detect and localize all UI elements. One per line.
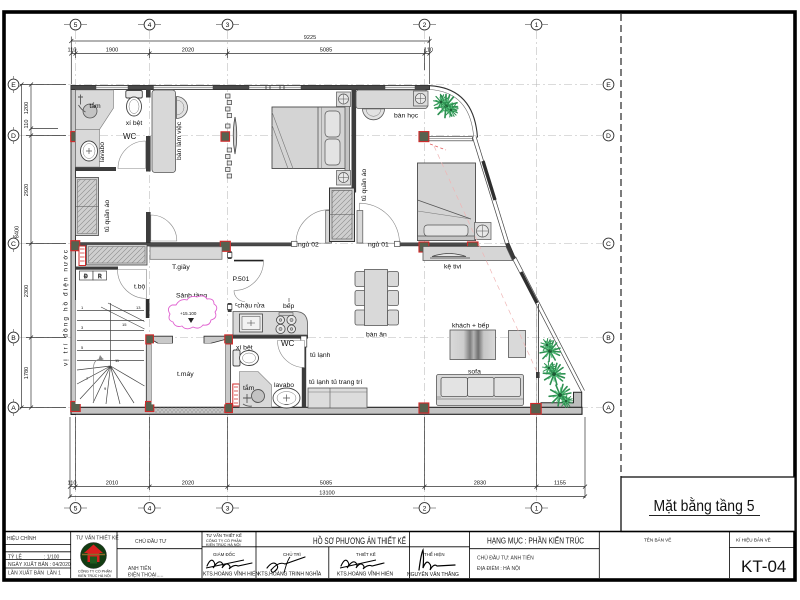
svg-text:khách + bếp: khách + bếp [452,321,489,330]
svg-text:kệ tivi: kệ tivi [444,264,462,271]
svg-text:2: 2 [423,506,427,513]
svg-text:ĐIỆN THOẠI.....: ĐIỆN THOẠI..... [128,571,163,579]
svg-text:HIỆU CHỈNH: HIỆU CHỈNH [7,534,37,542]
svg-text:bàn ăn: bàn ăn [366,332,387,339]
svg-text:E: E [11,82,16,89]
svg-text:HỒ SƠ PHƯƠNG ÁN THIẾT KẾ: HỒ SƠ PHƯƠNG ÁN THIẾT KẾ [313,535,406,546]
svg-text:1780: 1780 [24,367,30,379]
svg-text:T.giầy: T.giầy [172,262,190,271]
svg-text:TỶ LỆ: TỶ LỆ [8,553,23,561]
svg-text:110: 110 [68,481,77,487]
svg-text:KIẾN TRÚC HÀ NỘI: KIẾN TRÚC HÀ NỘI [206,542,241,547]
svg-text:5085: 5085 [320,481,332,487]
svg-text:TƯ VẤN THIẾT KẾ: TƯ VẤN THIẾT KẾ [206,533,242,538]
svg-text:THỂ HIỆN: THỂ HIỆN [424,552,445,557]
svg-text:4: 4 [148,22,152,29]
svg-text:3: 3 [226,506,230,513]
svg-text:ngủ 02: ngủ 02 [298,241,319,249]
svg-text:CHỦ TRÌ: CHỦ TRÌ [283,552,301,557]
svg-text:NGÀY XUẤT BẢN : 04/2020: NGÀY XUẤT BẢN : 04/2020 [8,561,71,568]
svg-text:5: 5 [74,22,78,29]
svg-text:lavabo: lavabo [274,382,294,389]
svg-text:LẦN XUẤT BẢN: LẦN XUẤT BẢN [8,570,44,577]
svg-text:13100: 13100 [319,491,335,497]
svg-text:ngủ 01: ngủ 01 [368,241,389,249]
svg-text:A: A [11,405,16,412]
svg-text:ᶜchậu rửa: ᶜchậu rửa [235,302,265,310]
svg-text:C: C [11,241,16,248]
svg-text:CHỦ ĐẦU TƯ: CHỦ ĐẦU TƯ [477,555,509,562]
svg-text:1200: 1200 [24,102,30,114]
svg-text:2010: 2010 [106,481,118,487]
svg-text:lavabo: lavabo [99,142,106,162]
svg-text:Đ: Đ [84,274,88,280]
svg-text:15: 15 [122,322,127,327]
svg-text:THIẾT KẾ: THIẾT KẾ [356,552,376,557]
svg-text:2300: 2300 [24,285,30,297]
svg-text:ĐỊA ĐIỂM : HÀ NỘI: ĐỊA ĐIỂM : HÀ NỘI [477,565,520,572]
svg-text:tắm: tắm [89,101,101,110]
svg-text:: 1/100: : 1/100 [44,555,60,561]
svg-text:NGUYỄN VĂN THẮNG: NGUYỄN VĂN THẮNG [407,570,459,578]
svg-text:2830: 2830 [474,481,486,487]
svg-text:2920: 2920 [24,184,30,196]
svg-text:vị trí đồng hồ điện nước: vị trí đồng hồ điện nước [61,249,70,366]
svg-text:2: 2 [423,22,427,29]
svg-text:D: D [606,133,611,140]
svg-text:B: B [11,335,16,342]
svg-text:xí bệt: xí bệt [126,120,143,127]
svg-text:4: 4 [148,506,152,513]
svg-text:tủ lạnh tủ trang trí: tủ lạnh tủ trang trí [309,378,362,386]
svg-text:9225: 9225 [304,35,316,41]
svg-text:Mặt bằng tầng 5: Mặt bằng tầng 5 [654,496,755,515]
svg-text:110: 110 [424,48,433,54]
svg-text:KTS.HOÀNG TRINH NGHĨA: KTS.HOÀNG TRINH NGHĨA [258,571,322,578]
svg-text:C: C [606,241,611,248]
svg-text:ANH TIẾN: ANH TIẾN [128,565,152,572]
svg-text:t.bộ: t.bộ [134,284,146,291]
svg-text:1155: 1155 [554,481,566,487]
svg-text:bàn làm việc: bàn làm việc [176,121,183,160]
svg-text:1900: 1900 [106,48,118,54]
svg-text:WC: WC [281,339,295,348]
svg-text:KIẾN TRÚC HÀ NỘI: KIẾN TRÚC HÀ NỘI [78,573,111,578]
svg-text:8400: 8400 [15,226,21,238]
svg-text:5: 5 [74,506,78,513]
svg-text:KTS.HOÀNG VĨNH HIỂN: KTS.HOÀNG VĨNH HIỂN [337,571,394,578]
svg-text:A: A [606,405,611,412]
svg-text:2020: 2020 [182,48,194,54]
svg-text:TƯ VẤN THIẾT KẾ: TƯ VẤN THIẾT KẾ [76,535,119,542]
svg-text:KT-04: KT-04 [741,557,786,576]
svg-text:t.máy: t.máy [177,371,194,378]
svg-text:tủ quần áo: tủ quần áo [359,169,368,201]
svg-text:LẦN 1: LẦN 1 [47,570,61,577]
svg-text:2020: 2020 [182,481,194,487]
svg-text:KTS.HOÀNG VĨNH HIỂN: KTS.HOÀNG VĨNH HIỂN [203,571,260,578]
svg-text:1: 1 [535,22,539,29]
svg-text:WC: WC [123,132,137,141]
svg-text:P.501: P.501 [233,276,250,283]
svg-text:+15.100: +15.100 [180,311,197,316]
svg-text:B: B [606,335,611,342]
svg-text:5085: 5085 [320,48,332,54]
svg-text:KÍ HIỆU BẢN VẼ: KÍ HIỆU BẢN VẼ [736,536,771,543]
svg-text:110: 110 [24,120,30,129]
svg-text:110: 110 [68,48,77,54]
svg-text:HẠNG MỤC : PHẦN KIẾN TRÚC: HẠNG MỤC : PHẦN KIẾN TRÚC [487,536,584,546]
svg-text:GIÁM ĐỐC: GIÁM ĐỐC [213,552,235,557]
svg-text:CHỦ ĐẦU TƯ: CHỦ ĐẦU TƯ [135,538,167,545]
svg-text:tủ lạnh: tủ lạnh [310,351,331,359]
svg-text:bếp: bếp [283,301,295,310]
svg-text:: ANH TIẾN: : ANH TIẾN [508,555,534,562]
svg-text:bàn học: bàn học [394,113,419,120]
svg-text:13: 13 [136,305,141,310]
svg-text:R: R [98,274,102,280]
svg-text:tắm: tắm [243,383,255,392]
svg-text:1: 1 [535,506,539,513]
svg-text:3: 3 [226,22,230,29]
svg-text:TÊN BẢN VẼ: TÊN BẢN VẼ [644,536,671,543]
svg-text:CÔNG TY CỔ PHẦN: CÔNG TY CỔ PHẦN [78,569,112,574]
svg-text:E: E [606,82,611,89]
svg-text:D: D [11,133,16,140]
svg-text:tủ quần áo: tủ quần áo [102,200,111,232]
